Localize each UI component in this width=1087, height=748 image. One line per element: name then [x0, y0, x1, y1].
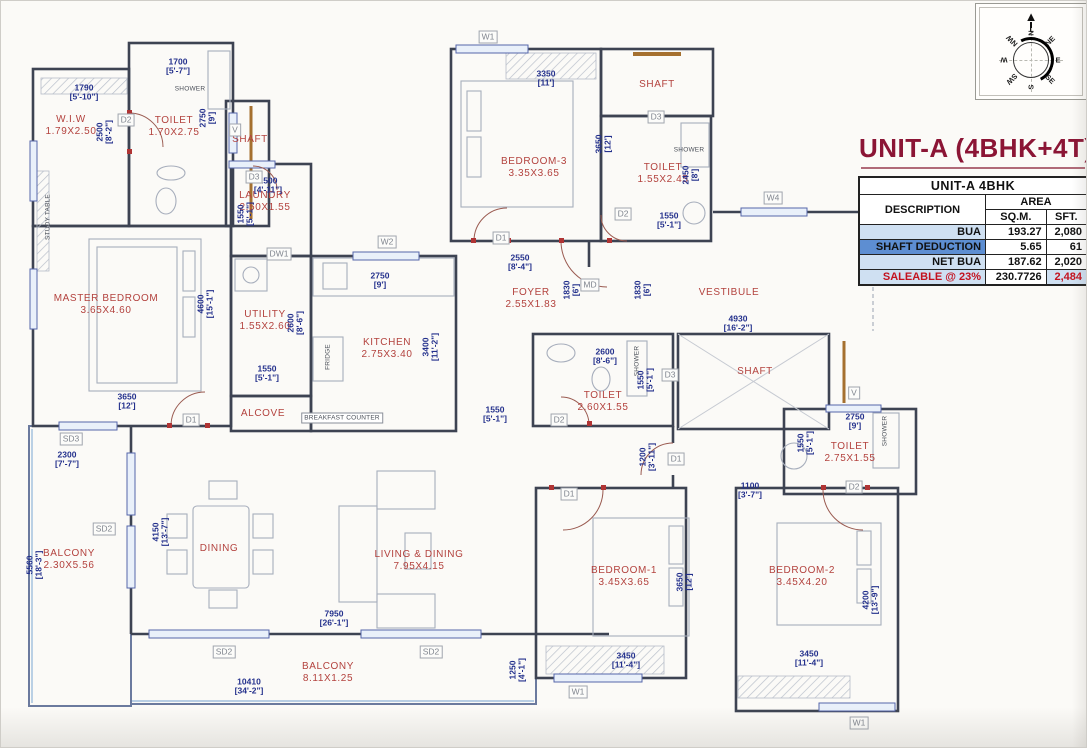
compass-direction: N [1027, 30, 1036, 35]
opening-tag-sd2: SD2 [420, 646, 443, 659]
dimension-label: 3450[11'-4"] [612, 652, 640, 671]
compass-direction: S [1027, 84, 1036, 89]
opening-tag-d1: D1 [668, 453, 685, 466]
dimension-label: 1790[5'-10"] [70, 84, 99, 103]
opening-tag-d3: D3 [246, 171, 263, 184]
col-description: DESCRIPTION [860, 195, 986, 225]
room-label: BEDROOM-23.45X4.20 [769, 565, 835, 589]
dimension-label: 1200[3'-11"] [639, 443, 658, 471]
area-sqm: 193.27 [986, 225, 1047, 240]
dimension-label: 3350[11'] [537, 70, 556, 89]
room-label: FOYER2.55X1.83 [506, 287, 557, 311]
room-label: BALCONY2.30X5.56 [43, 548, 95, 572]
page-title: UNIT-A (4BHK+4T) [859, 133, 1087, 164]
dimension-label: 2500[8'-2"] [96, 120, 115, 144]
room-label: BEDROOM-33.35X3.65 [501, 156, 567, 180]
opening-tag-d2: D2 [118, 114, 135, 127]
fixture-label: SHOWER [882, 416, 889, 446]
dimension-label: 1830[6'] [634, 281, 653, 300]
area-sft: 2,484 [1046, 270, 1086, 285]
room-label: TOILET2.60X1.55 [578, 390, 629, 414]
dimension-label: 3650[12'] [676, 573, 695, 592]
dimension-label: 3650[12'] [595, 135, 614, 154]
dimension-label: 3650[12'] [118, 393, 137, 412]
area-sqm: 230.7726 [986, 270, 1047, 285]
opening-tag-w1: W1 [479, 31, 498, 44]
room-label: TOILET1.70X2.75 [149, 115, 200, 139]
opening-tag-sd2: SD2 [213, 646, 236, 659]
area-sft: 61 [1046, 240, 1086, 255]
col-sqm: SQ.M. [986, 210, 1047, 225]
area-description: SHAFT DEDUCTION [860, 240, 986, 255]
opening-tag-d1: D1 [561, 488, 578, 501]
area-description: BUA [860, 225, 986, 240]
fixture-label: SHOWER [175, 86, 205, 93]
dimension-label: 3400[11'-2"] [422, 333, 441, 361]
opening-tag-d1: D1 [183, 414, 200, 427]
compass: ▲ NNEESESSWWNW [975, 3, 1087, 100]
room-label: BEDROOM-13.45X3.65 [591, 565, 657, 589]
area-description: NET BUA [860, 255, 986, 270]
dimension-label: 2300[7'-7"] [55, 451, 79, 470]
area-table: UNIT-A 4BHK DESCRIPTION AREA SQ.M. SFT. … [859, 177, 1087, 285]
area-sqm: 187.62 [986, 255, 1047, 270]
opening-tag-d2: D2 [615, 208, 632, 221]
area-description: SALEABLE @ 23% [860, 270, 986, 285]
opening-tag-w4: W4 [764, 192, 783, 205]
compass-direction: E [1055, 56, 1060, 65]
dimension-label: 1700[5'-7"] [166, 58, 190, 77]
compass-circle [1013, 42, 1049, 78]
dimension-label: 2600[8'-6"] [593, 348, 617, 367]
fixture-label: BREAKFAST COUNTER [301, 413, 383, 424]
dimension-label: 2750[9'] [199, 109, 218, 128]
room-label: W.I.W1.79X2.50 [46, 114, 97, 138]
opening-tag-d3: D3 [648, 111, 665, 124]
area-table-row: SALEABLE @ 23%230.77262,484 [860, 270, 1087, 285]
dimension-label: 10410[34'-2"] [235, 678, 264, 697]
dimension-label: 1830[6'] [563, 281, 582, 300]
room-label: KITCHEN2.75X3.40 [362, 337, 413, 361]
info-panel: UNIT-A (4BHK+4T) UNIT-A 4BHK DESCRIPTION… [859, 133, 1087, 285]
room-label: BALCONY8.11X1.25 [302, 661, 354, 685]
room-label: SHAFT [737, 366, 773, 378]
opening-tag-w1: W1 [569, 686, 588, 699]
opening-tag-sd2: SD2 [93, 523, 116, 536]
fixture-label: STUDY TABLE [45, 194, 52, 240]
dimension-label: 1550[5'-1"] [657, 212, 681, 231]
room-label: UTILITY1.55X2.60 [240, 309, 291, 333]
dimension-label: 1100[3'-7"] [738, 482, 762, 501]
room-label: MASTER BEDROOM3.65X4.60 [54, 293, 159, 317]
dimension-label: 1550[5'-1"] [797, 431, 816, 455]
dimension-label: 1550[5'-1"] [255, 365, 279, 384]
room-label: LIVING & DINING7.95X4.15 [374, 549, 463, 573]
opening-tag-d3: D3 [662, 369, 679, 382]
dimension-label: 2550[8'-4"] [508, 254, 532, 273]
title-underline [861, 167, 1085, 169]
dimension-label: 3450[11'-4"] [795, 650, 823, 669]
dimension-label: 4200[13'-9"] [862, 586, 881, 615]
area-sft: 2,080 [1046, 225, 1086, 240]
room-label: VESTIBULE [699, 287, 759, 299]
opening-tag-d2: D2 [551, 414, 568, 427]
opening-tag-dw1: DW1 [267, 248, 292, 261]
fixture-label: SHOWER [674, 147, 704, 154]
table-header: UNIT-A 4BHK [860, 178, 1087, 195]
opening-tag-md: MD [580, 279, 599, 292]
dimension-label: 2450[8'] [682, 166, 701, 185]
area-table-row: SHAFT DEDUCTION5.6561 [860, 240, 1087, 255]
compass-direction: W [1000, 56, 1007, 65]
dimension-label: 2750[9'] [371, 272, 390, 291]
fixture-label: SHOWER [634, 346, 641, 376]
col-area: AREA [986, 195, 1087, 210]
opening-tag-v: V [848, 387, 860, 400]
room-label: DINING [200, 543, 239, 555]
dimension-label: 7950[26'-1"] [320, 610, 349, 629]
dimension-label: 1550[5'-1"] [483, 406, 507, 425]
area-table-row: NET BUA187.622,020 [860, 255, 1087, 270]
dimension-label: 4600[15'-1"] [197, 290, 216, 319]
opening-tag-w2: W2 [378, 236, 397, 249]
dimension-label: 1250[4'-1"] [509, 658, 528, 682]
room-label: ALCOVE [241, 408, 285, 420]
fixture-label: FRIDGE [325, 344, 332, 370]
room-label: SHAFT [639, 79, 675, 91]
opening-tag-v: V [229, 124, 241, 137]
dimension-label: 4930[16'-2"] [724, 315, 753, 334]
dimension-label: 2600[8'-6"] [287, 311, 306, 335]
dimension-label: 5560[18'-3"] [26, 551, 45, 580]
floor-plan-sheet: W.I.W1.79X2.50TOILET1.70X2.75SHAFTLAUNDR… [0, 0, 1087, 748]
opening-tag-w1: W1 [850, 717, 869, 730]
dimension-label: 2750[9'] [846, 413, 865, 432]
area-sft: 2,020 [1046, 255, 1086, 270]
area-table-row: BUA193.272,080 [860, 225, 1087, 240]
dimension-label: 4150[13'-7"] [152, 518, 171, 547]
dimension-label: 1550[5'-1"] [237, 202, 256, 226]
room-label: TOILET2.75X1.55 [825, 441, 876, 465]
col-sft: SFT. [1046, 210, 1086, 225]
opening-tag-d2: D2 [846, 481, 863, 494]
area-sqm: 5.65 [986, 240, 1047, 255]
opening-tag-sd3: SD3 [60, 433, 83, 446]
opening-tag-d1: D1 [493, 232, 510, 245]
plan-labels-layer: W.I.W1.79X2.50TOILET1.70X2.75SHAFTLAUNDR… [1, 1, 1087, 748]
